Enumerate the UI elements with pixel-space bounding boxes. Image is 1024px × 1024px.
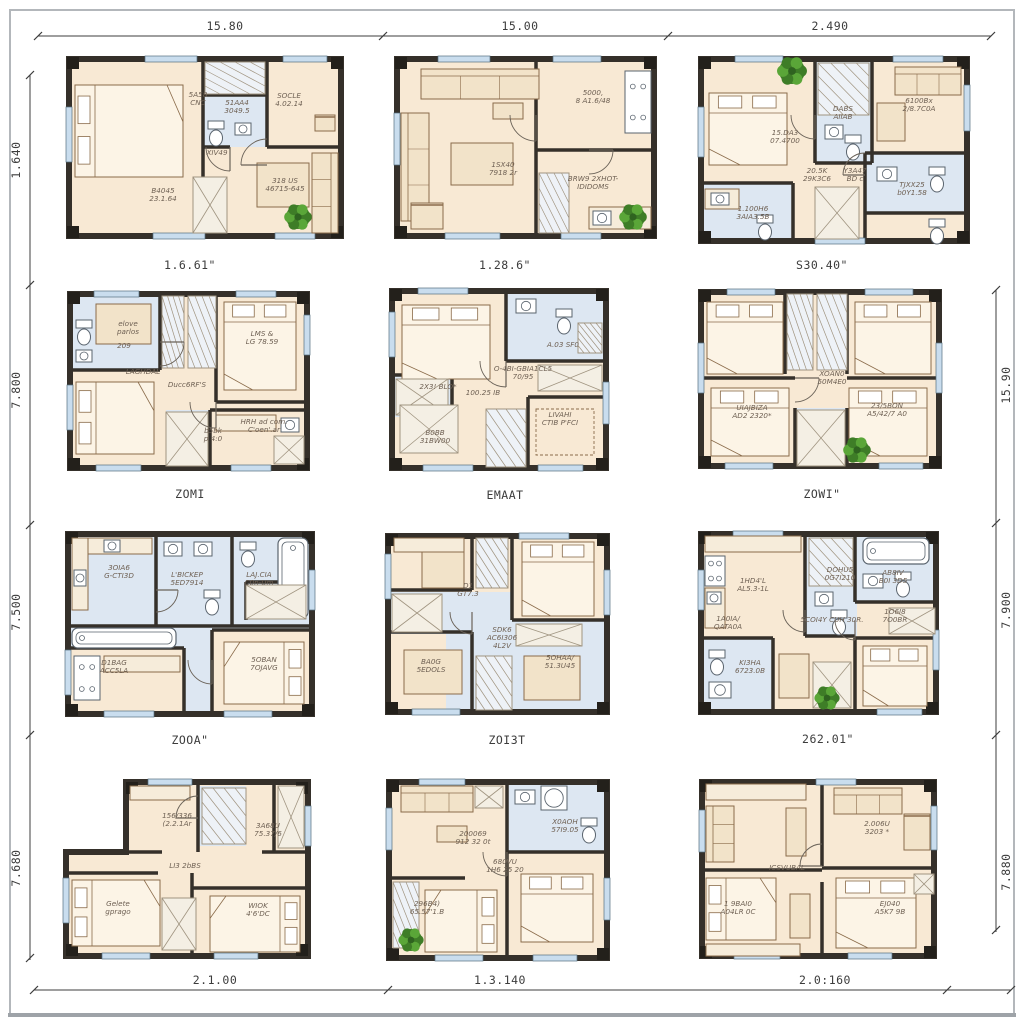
dimension-label: 7.880 (999, 853, 1013, 890)
dimension-label: 7.800 (9, 371, 23, 408)
room-label: 2X3! BLO* (419, 382, 457, 391)
dimension-line: 15.907.9007.880 (992, 286, 1013, 934)
dimension-label: 2.0:160 (799, 973, 851, 987)
room-label: b5bkp 4:0 (203, 426, 223, 443)
plan-caption: ZOI3T (488, 733, 525, 747)
plan-caption: EMAAT (486, 488, 523, 502)
room-label: 5OHAA/51.3U45 (545, 653, 576, 670)
room-label: LAGHDAL (126, 367, 160, 376)
dimension-label: 1.640 (9, 141, 23, 178)
plan-caption: 1.28.6" (479, 258, 531, 272)
room-label: XIV49 (205, 148, 228, 157)
dimension-label: 1.3.140 (474, 973, 526, 987)
floor-plan-r3c2: D1GT7.3SDK6AC6I3064L2VBA0G5EDOLS5OHAA/51… (385, 533, 610, 715)
room-label: SOCLE4.02.14 (275, 91, 303, 108)
floor-plan-r1c3: 15.DA307.4700DABSAIIAB6100Bx2/8.7C0A20.5… (698, 56, 970, 244)
room-label: 20.5K29K3C6 (803, 166, 831, 183)
floor-plan-r3c1: 3OIA6G-CTI3DL'BICKEP5ED7914LAJ.CIAC0n-Um… (65, 532, 315, 717)
dimension-line: 2.1.001.3.1402.0:160 (30, 973, 1015, 994)
floor-plan-r4c2: 200069912 32 0tX0AOH57I9.05680VU1H6 25 2… (386, 779, 610, 961)
room-label: L'BICKEP5ED7914 (171, 570, 204, 587)
room-label: 1O6I87O0BR (883, 607, 908, 624)
room-label: 1HD4'LAL5.3-1L (736, 576, 769, 593)
room-label: 2.006U3203 * (864, 819, 891, 836)
room-label: B404523.1.64 (149, 186, 177, 203)
floor-plan-r1c1: 5A58CNC51AA43049.5SOCLE4.02.14XIV49B4045… (66, 56, 343, 239)
dimension-label: 15.80 (206, 19, 243, 33)
room-label: 51AA43049.5 (224, 98, 250, 115)
plan-caption: 1.6.61" (164, 258, 216, 272)
sheet-svg: 15.8015.002.4902.1.001.3.1402.0:1601.640… (0, 0, 1024, 1024)
room-label: 6100Bx2/8.7C0A (903, 96, 936, 113)
dimension-line: 1.6407.8007.5007.680 (9, 71, 34, 962)
room-label: eloveparlos (116, 319, 139, 336)
room-label: 5OBAN7OJAVG (250, 655, 278, 672)
dimension-label: 2.490 (811, 19, 848, 33)
room-label: D1BAGACC5LA (99, 658, 129, 675)
room-label: A.03 SF0 (546, 340, 579, 349)
room-label: X0AOH57I9.05 (551, 817, 579, 834)
dimension-label: 15.00 (501, 19, 538, 33)
floor-plan-r2c2: A.03 SF0O-4BI-GBIA1CL570/952X3! BLO*100.… (389, 288, 609, 471)
room-label: 156/336(2.2.1Ar (162, 811, 192, 828)
dimension-label: 7.500 (9, 593, 23, 630)
dimension-label: 7.680 (9, 849, 23, 886)
floor-plan-r1c2: 5000,8 A1.6/481SX407918 2rBRW9 2XHOT-IDI… (394, 56, 656, 239)
dimension-label: 2.1.00 (193, 973, 238, 987)
room-label: 1.100H63AIA3.5B (737, 204, 770, 221)
room-label: XOAN050M4E0 (817, 369, 846, 386)
room-label: DABSAIIAB (832, 104, 853, 121)
room-label: 3OIA6G-CTI3D (104, 563, 134, 580)
room-label: WIOK4'6'DC (246, 901, 270, 918)
plan-caption: S30.40" (796, 258, 848, 272)
plan-caption: ZOOA" (171, 733, 208, 747)
room-label: LAJ.CIAC0n-Um (244, 570, 273, 587)
room-label: KI3HA6723.0B (735, 658, 765, 675)
plan-caption: 262.01" (802, 732, 854, 746)
room-label: DOHU50G7I210 (825, 565, 856, 582)
room-label: 1A0IA/QATA0A (714, 614, 742, 631)
room-label: TJXX25b0Y1.58 (897, 180, 927, 197)
dimension-line: 15.8015.002.490 (34, 19, 995, 40)
room-label: 23/5BONA5/42/7 A0 (866, 401, 907, 418)
room-label: 1 9BAI0A04LR 0C (720, 899, 756, 916)
room-label: 200069912 32 0t (456, 829, 492, 846)
floor-plan-r4c3: 2.006U3203 *ICSVUBAL1 9BAI0A04LR 0CEJ040… (699, 779, 937, 959)
floor-plan-r4c1: 156/336(2.2.1Ar3A68U75.37/6LI3 2bBSGelet… (63, 779, 311, 959)
room-label: UIAJBIZAAD2 2320* (731, 403, 772, 420)
room-label: 1SX407918 2r (489, 160, 518, 177)
room-label: Ducc6RF'S (168, 380, 207, 389)
room-label: 3A68U75.37/6 (254, 821, 282, 838)
room-label: LI3 2bBS (169, 861, 201, 870)
room-label: Geletegprago (105, 899, 131, 916)
room-label: 209 (117, 341, 131, 350)
floorplan-sheet: 15.8015.002.4902.1.001.3.1402.0:1601.640… (0, 0, 1024, 1024)
room-label: 296B4)65.57'1.B (410, 899, 444, 916)
plan-caption: ZOMI (175, 487, 205, 501)
room-label: 5A58CNC (189, 90, 208, 107)
floor-plan-r2c1: eloveparlos209LMS &LG 78.59LAGHDALDucc6R… (67, 291, 310, 471)
room-label: 100.25 IB (466, 388, 501, 397)
room-label: AB8IVB0I 3D5 (879, 568, 908, 585)
plan-caption: ZOWI" (803, 487, 840, 501)
floor-plan-r3c3: 1HD4'LAL5.3-1LDOHU50G7I210AB8IVB0I 3D55C… (698, 531, 939, 715)
room-label: 15.DA307.4700 (770, 128, 800, 145)
floor-plan-r2c3: XOAN050M4E0UIAJBIZAAD2 2320*23/5BONA5/42… (698, 289, 942, 469)
room-label: ICSVUBAL (769, 863, 805, 872)
dimension-label: 15.90 (999, 366, 1013, 403)
room-label: 5COI4Y CUH 30R. (800, 615, 863, 624)
dimension-label: 7.900 (999, 591, 1013, 628)
